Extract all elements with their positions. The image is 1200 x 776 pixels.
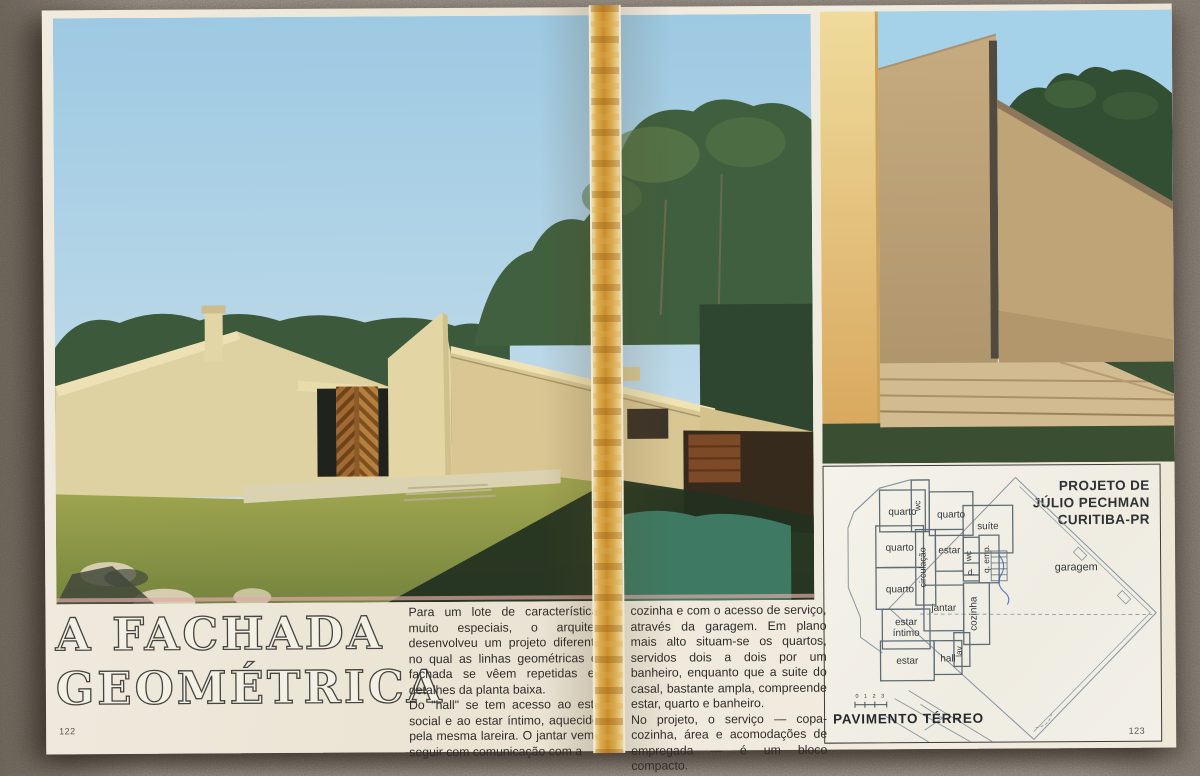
- room-label: quarto: [886, 543, 915, 554]
- floor-plan-drawing: quarto wc quarto suíte quarto circulação…: [824, 465, 1162, 743]
- room-label: garagem: [1055, 561, 1098, 573]
- room-label: d.: [968, 567, 975, 577]
- main-house-photo-art: [53, 14, 815, 605]
- binding-tape: [589, 5, 626, 753]
- plan-room-labels: quarto wc quarto suíte quarto circulação…: [854, 500, 1098, 700]
- fold-shadow-left: [539, 7, 594, 751]
- room-label: wc: [912, 501, 922, 512]
- magazine-spread: PROJETO DE JÚLIO PECHMAN CURITIBA-PR: [42, 4, 1177, 755]
- plan-caption: PAVIMENTO TÉRREO: [833, 711, 984, 727]
- room-label: estar: [895, 617, 918, 628]
- plan-scale-bar: [855, 702, 887, 708]
- room-label: jantar: [930, 603, 957, 614]
- room-label: q. emp.: [981, 545, 991, 573]
- room-label: cozinha: [968, 596, 979, 631]
- main-house-photo: [53, 14, 815, 605]
- room-label: íntimo: [893, 628, 921, 639]
- room-label: wc: [963, 551, 973, 562]
- facade-detail-art: [820, 10, 1175, 464]
- room-label: lav: [954, 645, 964, 657]
- page-number-left: 122: [59, 726, 76, 736]
- room-label: estar: [938, 545, 961, 556]
- photographed-magazine-scene: PROJETO DE JÚLIO PECHMAN CURITIBA-PR: [0, 0, 1200, 776]
- room-label: estar: [896, 656, 919, 667]
- room-label: circulação: [918, 547, 928, 587]
- room-label: quarto: [937, 509, 966, 520]
- page-number-right: 123: [1129, 726, 1146, 736]
- room-label: quarto: [886, 584, 915, 595]
- facade-detail-photo: [820, 10, 1175, 464]
- floor-plan-panel: PROJETO DE JÚLIO PECHMAN CURITIBA-PR: [823, 464, 1163, 744]
- tape-texture: [591, 5, 624, 753]
- plan-scale-numbers: 0 1 2 3: [856, 694, 887, 700]
- fold-shadow-right: [617, 7, 677, 751]
- room-label: suíte: [977, 521, 999, 532]
